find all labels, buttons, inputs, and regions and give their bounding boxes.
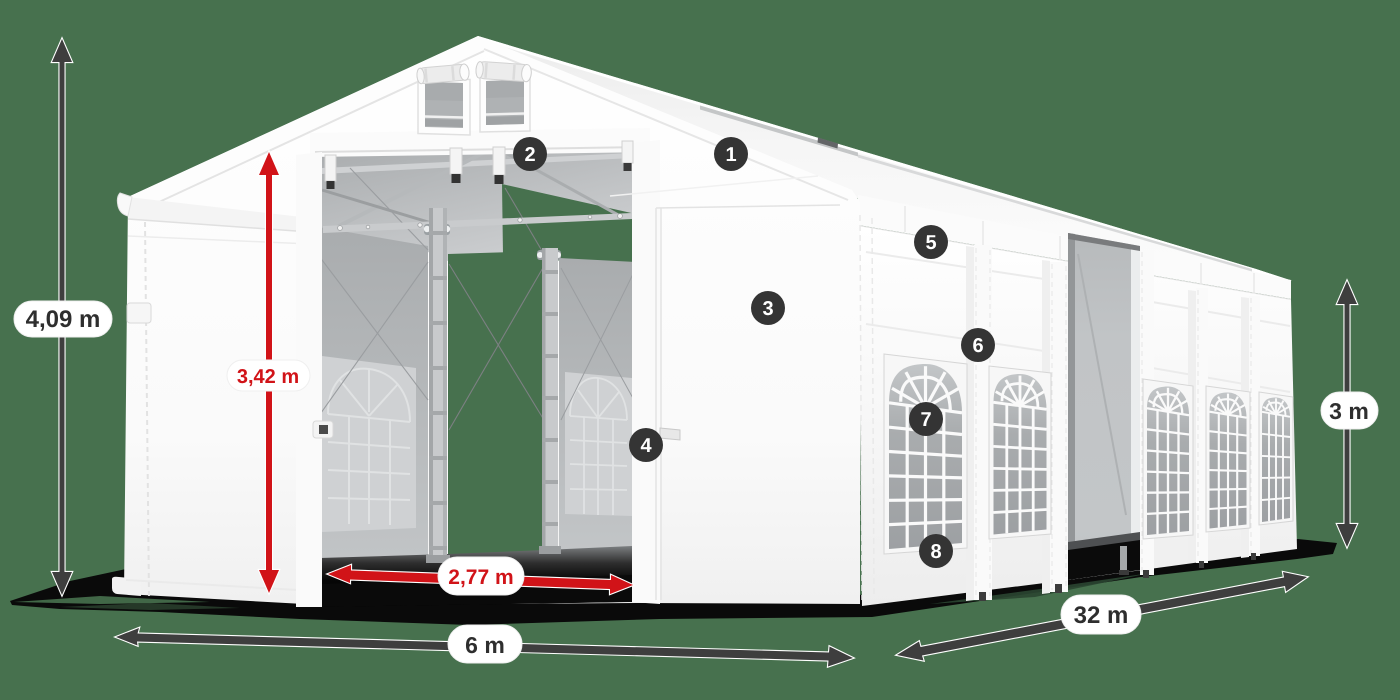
svg-text:3 m: 3 m	[1329, 398, 1369, 424]
svg-text:32 m: 32 m	[1074, 602, 1129, 629]
svg-text:8: 8	[930, 541, 941, 563]
svg-text:1: 1	[725, 144, 736, 166]
svg-text:3: 3	[762, 298, 773, 320]
svg-text:2: 2	[524, 144, 535, 166]
svg-text:4: 4	[640, 435, 652, 457]
svg-text:5: 5	[925, 232, 936, 254]
svg-text:2,77 m: 2,77 m	[448, 566, 513, 589]
svg-text:6 m: 6 m	[465, 632, 505, 658]
svg-text:3,42 m: 3,42 m	[237, 366, 299, 388]
svg-text:6: 6	[972, 335, 983, 357]
svg-text:4,09 m: 4,09 m	[26, 306, 101, 333]
svg-text:7: 7	[920, 409, 931, 431]
